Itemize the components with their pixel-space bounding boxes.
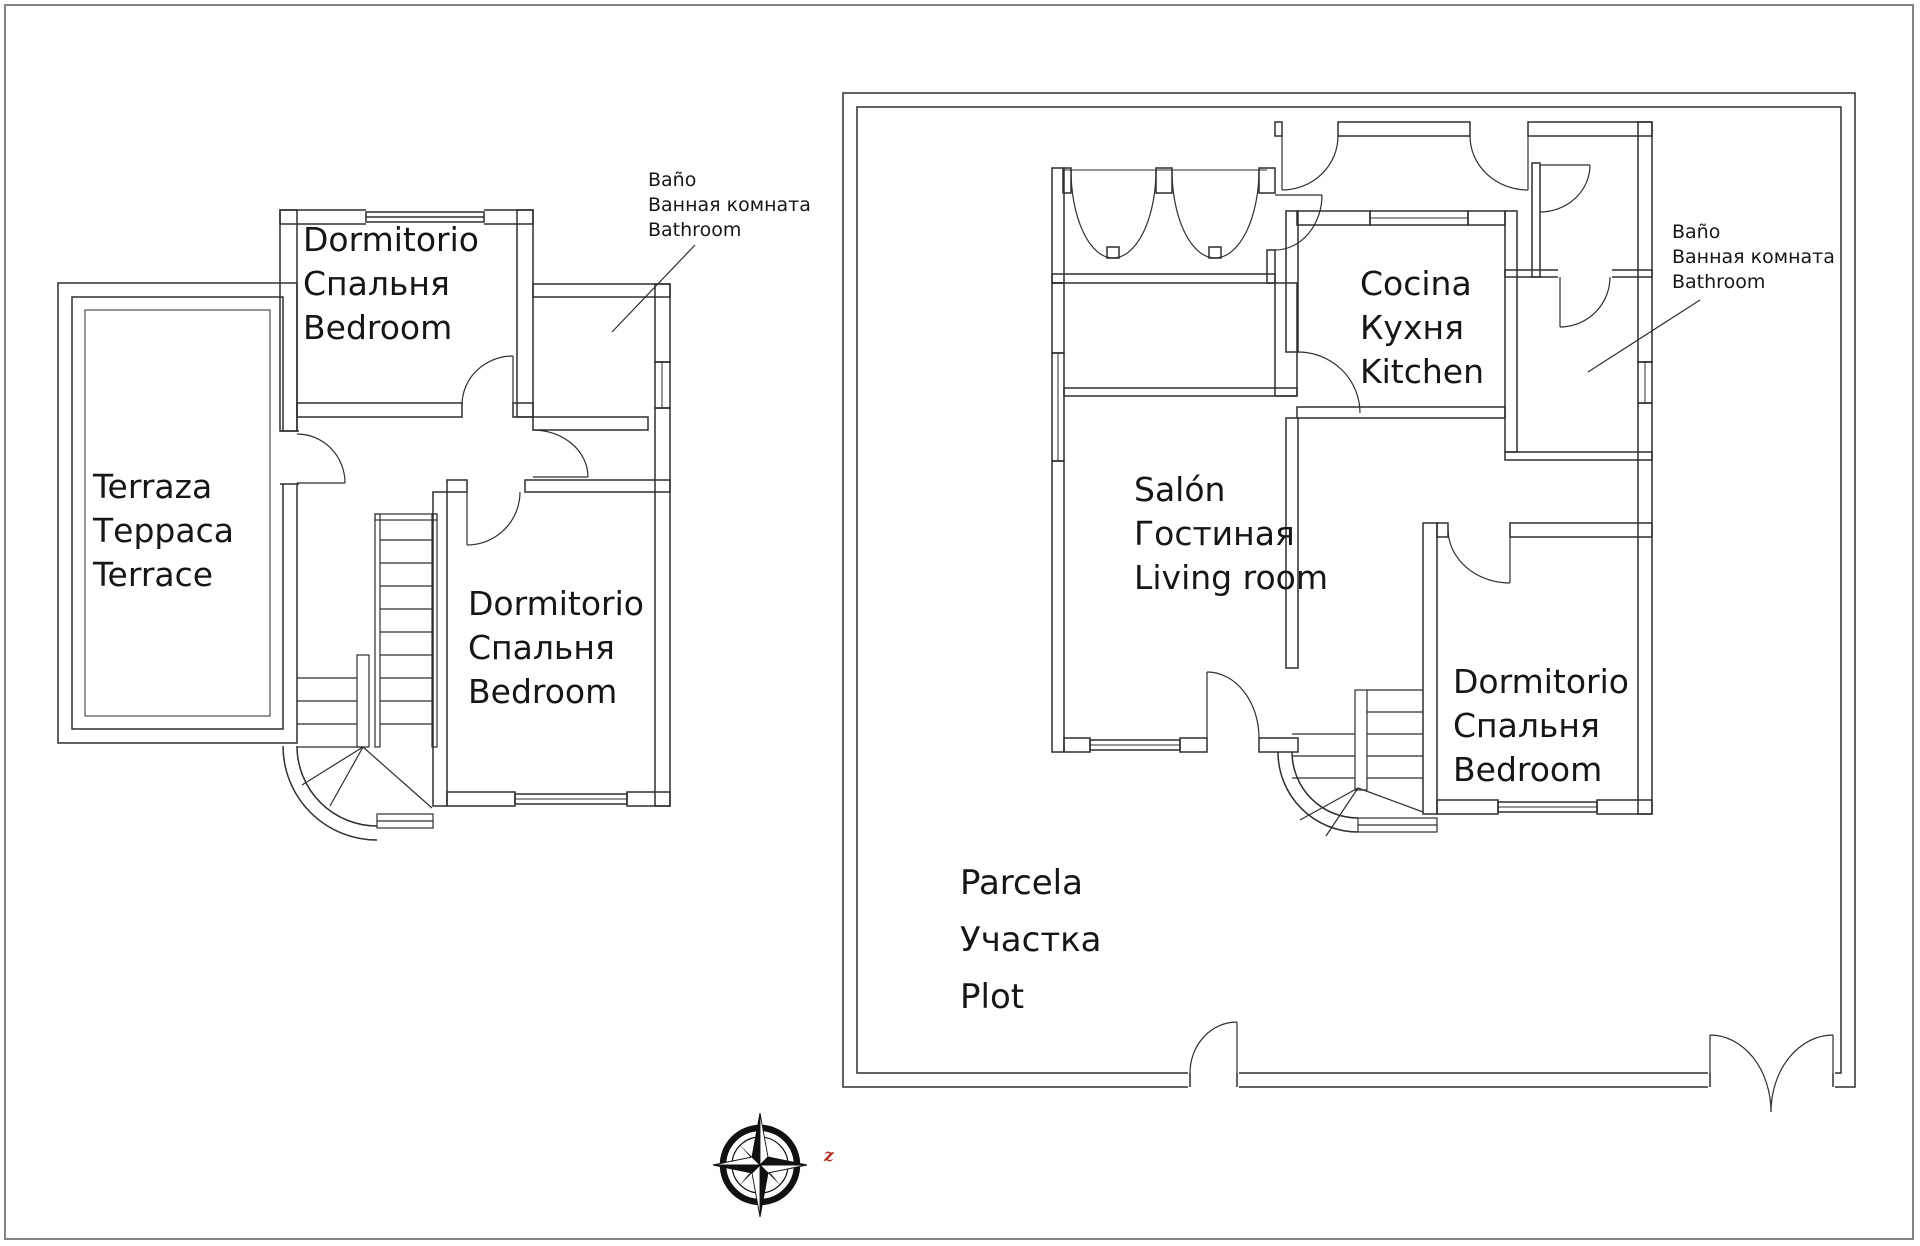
note-ground-bathroom: Baño Ванная комната Bathroom	[1672, 220, 1835, 295]
label-line: Кухня	[1360, 306, 1484, 350]
upper-door-arcs	[297, 356, 588, 545]
upper-staircase	[283, 514, 437, 840]
label-line: Living room	[1134, 556, 1328, 600]
house-top-walls	[1275, 122, 1652, 190]
label-plot: Parcela Участка Plot	[960, 855, 1102, 1026]
label-upper-bedroom2: Dormitorio Спальня Bedroom	[468, 582, 644, 714]
upper-bath-leader-line	[612, 245, 695, 332]
plan-linework	[0, 0, 1920, 1246]
label-line: Parcela	[960, 855, 1102, 912]
compass-east-letter: z	[824, 1146, 834, 1166]
label-line: Терраса	[93, 509, 234, 553]
label-upper-bedroom1: Dormitorio Спальня Bedroom	[303, 218, 479, 350]
label-line: Спальня	[303, 262, 479, 306]
note-line: Baño	[1672, 220, 1835, 245]
label-line: Terraza	[93, 465, 234, 509]
label-upper-terrace: Terraza Терраса Terrace	[93, 465, 234, 597]
compass-rose-icon	[713, 1113, 807, 1217]
label-kitchen: Cocina Кухня Kitchen	[1360, 262, 1484, 394]
note-line: Baño	[648, 168, 811, 193]
ground-bath-leader-line	[1588, 300, 1700, 372]
label-line: Plot	[960, 969, 1102, 1026]
label-living-room: Salón Гостиная Living room	[1134, 468, 1328, 600]
label-line: Dormitorio	[468, 582, 644, 626]
label-line: Terrace	[93, 553, 234, 597]
label-line: Cocina	[1360, 262, 1484, 306]
label-line: Bedroom	[1453, 748, 1629, 792]
ground-staircase	[1278, 690, 1437, 836]
label-line: Спальня	[468, 626, 644, 670]
note-line: Ванная комната	[648, 193, 811, 218]
label-line: Участка	[960, 912, 1102, 969]
label-line: Гостиная	[1134, 512, 1328, 556]
upper-bathroom-walls	[447, 284, 670, 806]
label-line: Bedroom	[468, 670, 644, 714]
label-ground-bedroom: Dormitorio Спальня Bedroom	[1453, 660, 1629, 792]
label-line: Спальня	[1453, 704, 1629, 748]
note-line: Bathroom	[1672, 270, 1835, 295]
note-upper-bathroom: Baño Ванная комната Bathroom	[648, 168, 811, 243]
note-line: Ванная комната	[1672, 245, 1835, 270]
note-line: Bathroom	[648, 218, 811, 243]
label-line: Dormitorio	[1453, 660, 1629, 704]
label-line: Dormitorio	[303, 218, 479, 262]
label-line: Salón	[1134, 468, 1328, 512]
floor-plan-sheet: Dormitorio Спальня Bedroom Terraza Терра…	[0, 0, 1920, 1246]
label-line: Bedroom	[303, 306, 479, 350]
label-line: Kitchen	[1360, 350, 1484, 394]
